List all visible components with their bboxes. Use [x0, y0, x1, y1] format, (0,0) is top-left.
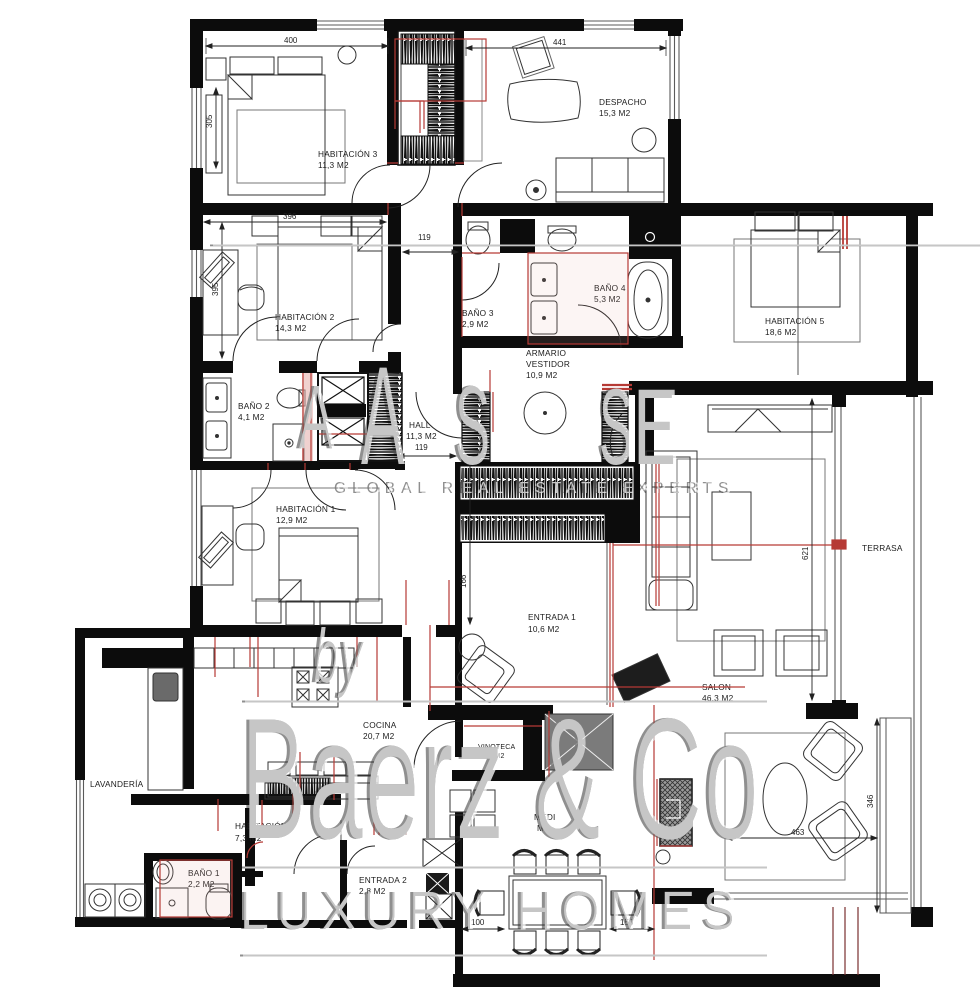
svg-text:HABITACIÓN 5: HABITACIÓN 5: [765, 316, 825, 326]
svg-text:S: S: [599, 366, 633, 487]
svg-text:LAVANDERÍA: LAVANDERÍA: [90, 779, 144, 789]
svg-text:VESTIDOR: VESTIDOR: [526, 359, 570, 369]
svg-text:119: 119: [418, 233, 431, 242]
svg-text:BAÑO 2: BAÑO 2: [238, 401, 270, 411]
svg-text:18,6 M2: 18,6 M2: [765, 327, 797, 337]
svg-text:LUXURY HOMES: LUXURY HOMES: [240, 881, 745, 941]
svg-text:HABITACIÓN 2: HABITACIÓN 2: [275, 312, 335, 322]
svg-text:A: A: [361, 337, 405, 494]
svg-text:4,1 M2: 4,1 M2: [238, 412, 265, 422]
svg-text:HABITACIÓN 3: HABITACIÓN 3: [318, 149, 378, 159]
svg-text:E: E: [633, 366, 679, 487]
svg-text:346: 346: [866, 794, 875, 808]
svg-text:396: 396: [283, 212, 297, 221]
svg-text:A: A: [299, 368, 335, 468]
svg-text:166: 166: [459, 574, 468, 588]
svg-text:305: 305: [205, 114, 214, 128]
svg-text:395: 395: [211, 282, 220, 296]
svg-text:11,3 M2: 11,3 M2: [318, 160, 349, 170]
svg-text:10,9 M2: 10,9 M2: [526, 370, 558, 380]
svg-text:HALL: HALL: [409, 420, 431, 430]
svg-text:2,9 M2: 2,9 M2: [462, 319, 489, 329]
svg-text:ARMARIO: ARMARIO: [526, 348, 566, 358]
svg-text:S: S: [455, 363, 490, 488]
svg-text:441: 441: [553, 38, 567, 47]
svg-text:11,3 M2: 11,3 M2: [406, 431, 437, 441]
svg-text:12,9 M2: 12,9 M2: [276, 515, 308, 525]
svg-text:621: 621: [801, 546, 810, 560]
svg-text:400: 400: [284, 36, 298, 45]
svg-text:14,3 M2: 14,3 M2: [275, 323, 307, 333]
svg-text:10,6 M2: 10,6 M2: [528, 624, 560, 634]
svg-text:DESPACHO: DESPACHO: [599, 97, 647, 107]
svg-text:463: 463: [791, 828, 805, 837]
svg-text:GLOBAL REAL ESTATE EXPERTS: GLOBAL REAL ESTATE EXPERTS: [337, 480, 737, 497]
svg-text:TERRASA: TERRASA: [862, 543, 903, 553]
svg-text:BAÑO 3: BAÑO 3: [462, 308, 494, 318]
svg-text:Baerz & Co: Baerz & Co: [241, 683, 761, 875]
svg-text:ENTRADA 1: ENTRADA 1: [528, 612, 576, 622]
svg-text:15,3 M2: 15,3 M2: [599, 108, 631, 118]
svg-text:119: 119: [415, 443, 428, 452]
